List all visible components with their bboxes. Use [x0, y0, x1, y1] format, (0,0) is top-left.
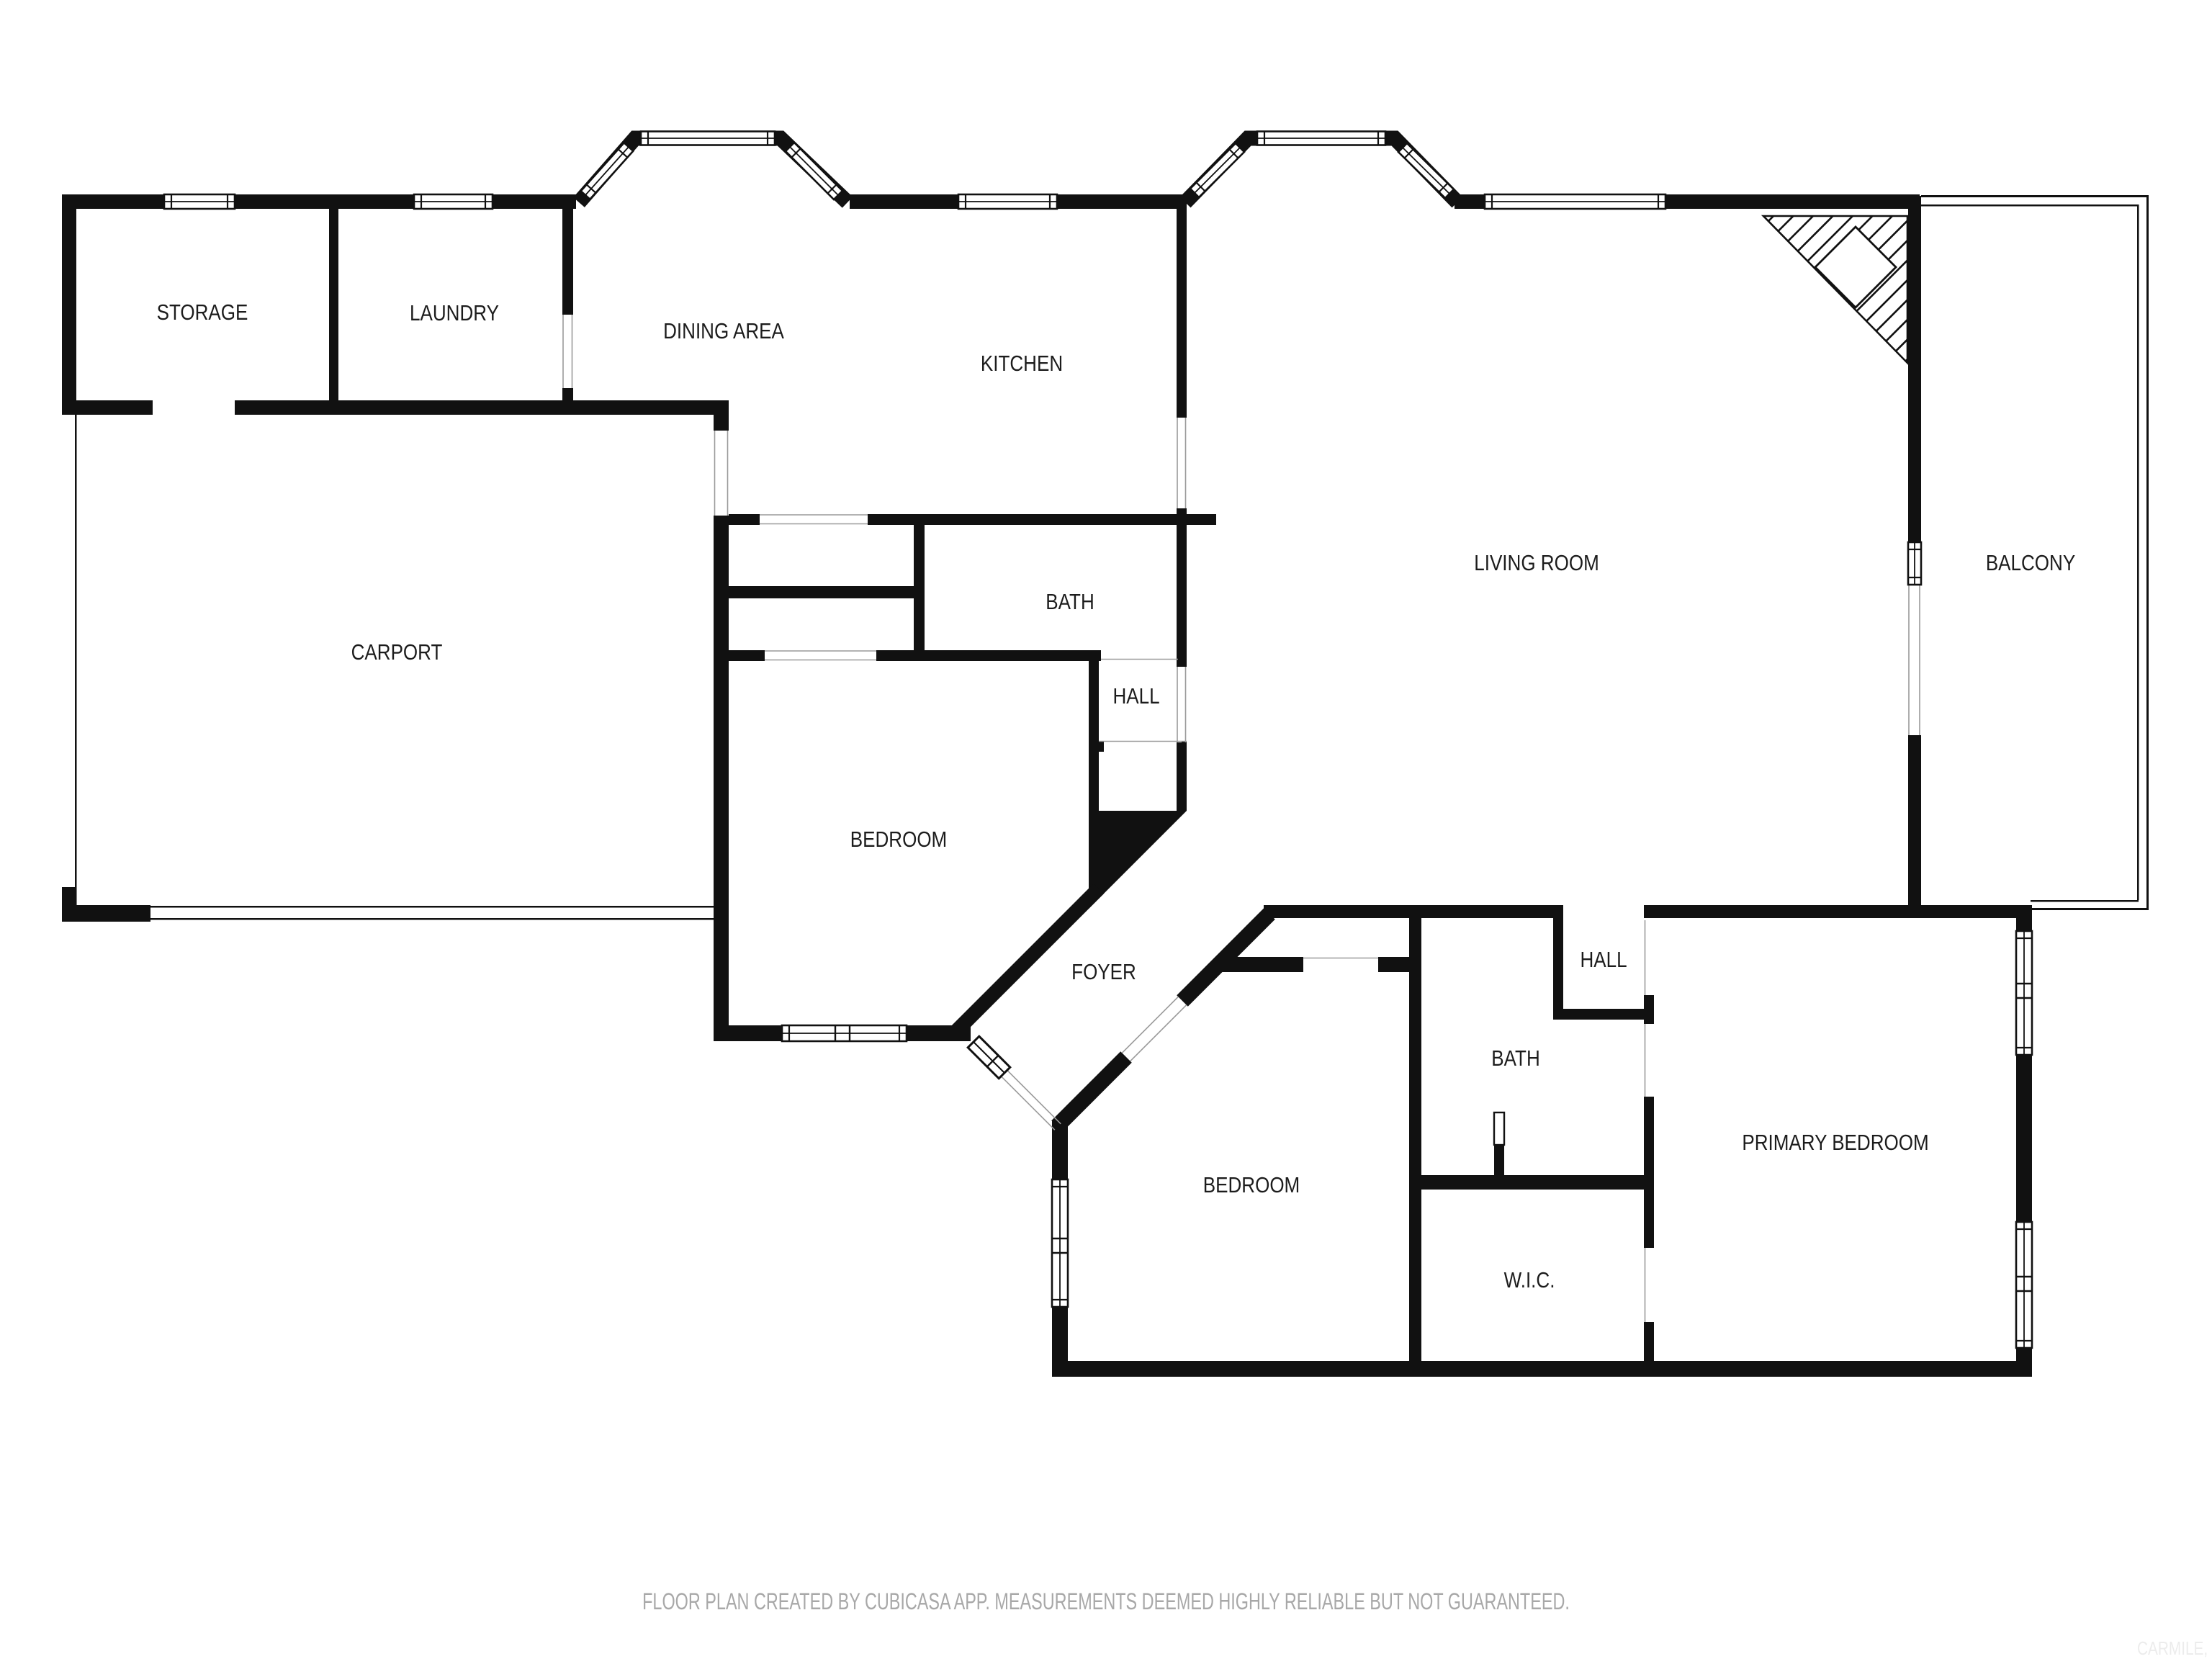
svg-text:BATH: BATH: [1046, 590, 1094, 615]
svg-text:CARPORT: CARPORT: [351, 640, 443, 665]
svg-text:HALL: HALL: [1112, 684, 1159, 709]
svg-text:STORAGE: STORAGE: [157, 300, 248, 325]
svg-text:PRIMARY BEDROOM: PRIMARY BEDROOM: [1742, 1130, 1928, 1156]
svg-text:FLOOR PLAN CREATED BY CUBICASA: FLOOR PLAN CREATED BY CUBICASA APP. MEAS…: [642, 1588, 1570, 1614]
svg-text:LAUNDRY: LAUNDRY: [410, 301, 499, 326]
svg-text:CARMILE, INC: CARMILE, INC: [2137, 1638, 2212, 1659]
svg-text:BALCONY: BALCONY: [1986, 551, 2075, 576]
svg-text:BATH: BATH: [1491, 1046, 1539, 1071]
svg-text:FOYER: FOYER: [1071, 960, 1136, 985]
svg-text:BEDROOM: BEDROOM: [850, 827, 947, 853]
svg-text:W.I.C.: W.I.C.: [1504, 1268, 1555, 1293]
svg-text:DINING AREA: DINING AREA: [663, 319, 785, 344]
svg-text:KITCHEN: KITCHEN: [981, 351, 1063, 377]
svg-text:HALL: HALL: [1580, 948, 1627, 973]
svg-text:LIVING ROOM: LIVING ROOM: [1474, 551, 1599, 576]
svg-text:BEDROOM: BEDROOM: [1203, 1173, 1300, 1198]
